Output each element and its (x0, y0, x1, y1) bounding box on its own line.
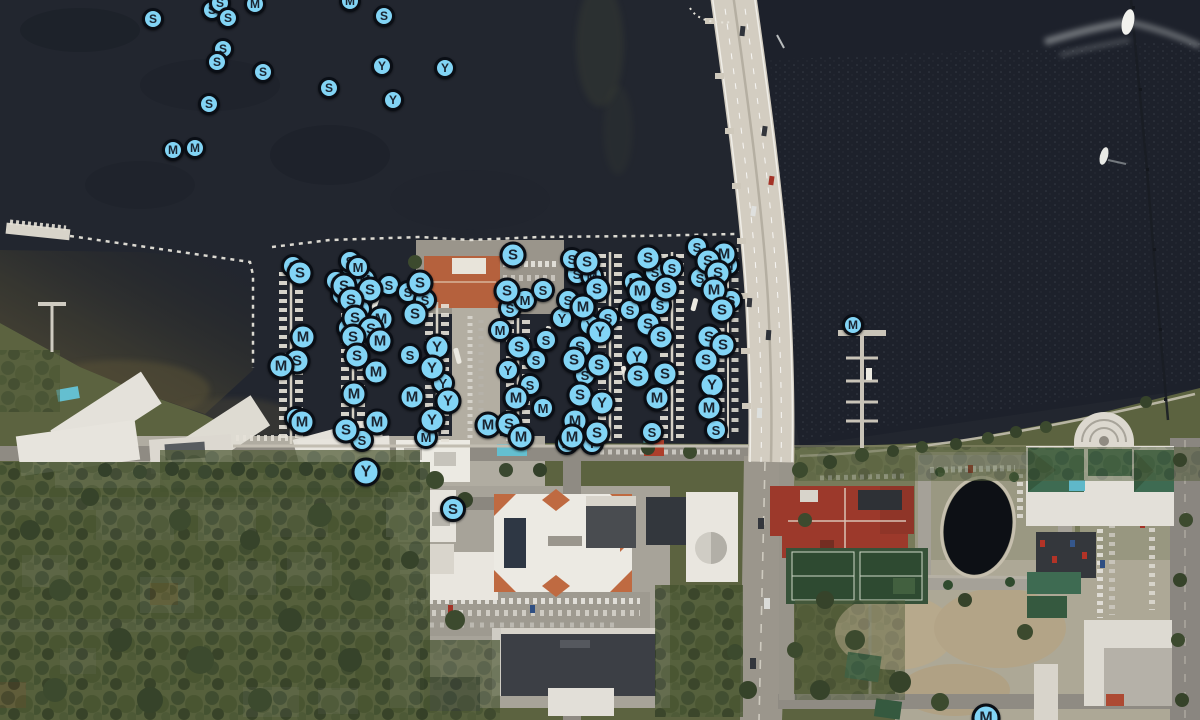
marker-s-icon[interactable]: S (648, 324, 675, 351)
marker-y-icon[interactable]: Y (352, 458, 381, 487)
marker-y-icon[interactable]: Y (589, 390, 616, 417)
marker-m-icon[interactable]: M (696, 395, 723, 422)
marker-m-icon[interactable]: M (184, 137, 206, 159)
satellite-map[interactable]: SMSSSSSSSSYSMSYSSSMYMSMSSYSSMSSSSMSSSSMS… (0, 0, 1200, 720)
marker-m-icon[interactable]: M (289, 409, 316, 436)
marker-m-icon[interactable]: M (339, 0, 361, 12)
marker-m-icon[interactable]: M (341, 381, 368, 408)
marker-s-icon[interactable]: S (217, 7, 239, 29)
marker-s-icon[interactable]: S (142, 8, 164, 30)
marker-m-icon[interactable]: M (399, 384, 426, 411)
marker-s-icon[interactable]: S (625, 363, 652, 390)
marker-layer: SMSSSSSSSSYSMSYSSSMYMSMSSYSSMSSSSMSSSSMS… (0, 0, 1200, 720)
marker-s-icon[interactable]: S (635, 245, 662, 272)
marker-m-icon[interactable]: M (570, 294, 597, 321)
marker-s-icon[interactable]: S (318, 77, 340, 99)
marker-s-icon[interactable]: S (206, 51, 228, 73)
marker-y-icon[interactable]: Y (419, 355, 446, 382)
marker-s-icon[interactable]: S (561, 347, 588, 374)
marker-s-icon[interactable]: S (531, 278, 555, 302)
marker-s-icon[interactable]: S (506, 334, 533, 361)
marker-s-icon[interactable]: S (440, 496, 466, 522)
marker-s-icon[interactable]: S (584, 420, 611, 447)
marker-m-icon[interactable]: M (644, 385, 671, 412)
marker-m-icon[interactable]: M (268, 353, 295, 380)
marker-y-icon[interactable]: Y (371, 55, 393, 77)
marker-s-icon[interactable]: S (252, 61, 274, 83)
marker-s-icon[interactable]: S (709, 297, 736, 324)
marker-m-icon[interactable]: M (559, 424, 586, 451)
marker-s-icon[interactable]: S (653, 275, 680, 302)
marker-m-icon[interactable]: M (162, 139, 184, 161)
marker-m-icon[interactable]: M (531, 396, 555, 420)
marker-m-icon[interactable]: M (290, 324, 317, 351)
marker-m-icon[interactable]: M (503, 385, 530, 412)
marker-s-icon[interactable]: S (704, 418, 728, 442)
marker-s-icon[interactable]: S (652, 361, 679, 388)
marker-y-icon[interactable]: Y (419, 407, 446, 434)
marker-s-icon[interactable]: S (198, 93, 220, 115)
marker-m-icon[interactable]: M (508, 424, 535, 451)
marker-m-icon[interactable]: M (363, 359, 390, 386)
marker-s-icon[interactable]: S (693, 347, 720, 374)
marker-m-icon[interactable]: M (244, 0, 266, 15)
marker-y-icon[interactable]: Y (496, 358, 520, 382)
marker-s-icon[interactable]: S (407, 270, 434, 297)
marker-s-icon[interactable]: S (494, 278, 521, 305)
marker-s-icon[interactable]: S (373, 5, 395, 27)
marker-s-icon[interactable]: S (287, 260, 314, 287)
marker-s-icon[interactable]: S (586, 352, 613, 379)
marker-m-icon[interactable]: M (627, 278, 654, 305)
marker-s-icon[interactable]: S (574, 249, 601, 276)
marker-m-icon[interactable]: M (972, 704, 1001, 720)
marker-s-icon[interactable]: S (500, 242, 527, 269)
marker-s-icon[interactable]: S (333, 417, 360, 444)
marker-m-icon[interactable]: M (842, 314, 864, 336)
marker-s-icon[interactable]: S (402, 301, 429, 328)
marker-y-icon[interactable]: Y (382, 89, 404, 111)
marker-y-icon[interactable]: Y (434, 57, 456, 79)
marker-s-icon[interactable]: S (534, 328, 558, 352)
marker-m-icon[interactable]: M (364, 409, 391, 436)
marker-s-icon[interactable]: S (640, 420, 664, 444)
marker-m-icon[interactable]: M (367, 328, 394, 355)
